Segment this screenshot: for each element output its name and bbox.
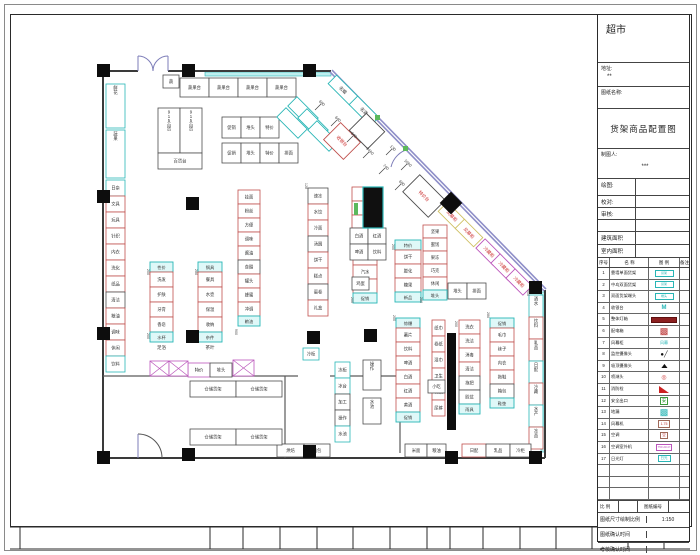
title-block: 超市 地址: ** 图纸名称: 货架商品配置图 制图人: *** 绘图: 校对:…: [597, 14, 690, 542]
legend-row: 7风幕柜风幕: [598, 338, 689, 350]
promo-xbox: [169, 361, 188, 376]
column: [529, 451, 542, 464]
plan-label: 卷纸: [434, 341, 443, 348]
plan-label: 特价: [265, 124, 274, 130]
shelf-cell: 清洁: [106, 292, 125, 308]
ratio-label: 图纸尺寸绘制比例: [598, 516, 647, 523]
legend-symbol-redbar: [651, 317, 677, 323]
shelf-cell: 湿巾: [432, 352, 445, 368]
shelf-cell: 蛋卷: [308, 284, 328, 300]
plan-label: 休闲: [111, 345, 120, 352]
shelf-run: 纸巾卷纸湿巾卫生棉柔尿裤: [432, 320, 445, 416]
plan-label: 200: [350, 297, 354, 303]
plan-label: 冰台: [338, 383, 347, 390]
shelf-cell: 方便: [238, 218, 260, 232]
column: [186, 197, 199, 210]
shelf-cell: 内衣: [106, 244, 125, 260]
plan-label: 清洁: [465, 366, 474, 373]
plan-label: 130: [389, 144, 398, 153]
plan-label: 箱包: [498, 388, 507, 395]
plan-label: 护肤: [157, 291, 166, 298]
legend-row: 16空调室外机750 AD-P: [598, 442, 689, 454]
plan-label: 鞋垫: [498, 400, 507, 407]
plan-label: 饮料: [111, 361, 120, 368]
shelf-run: 促销毛巾袜子内衣拖鞋箱包鞋垫: [490, 318, 514, 408]
shelf-endcap: 水杯: [150, 332, 173, 342]
sheet-title: 货架商品配置图: [598, 109, 689, 149]
plan-label: 蔬果: [113, 131, 118, 142]
check-row: 校对:: [598, 196, 689, 208]
plan-label: 促销: [404, 414, 412, 421]
plan-label: 特价: [195, 367, 204, 373]
column: [97, 327, 110, 340]
partition-wall: [447, 333, 456, 430]
shelf-cell: 巧克: [423, 264, 447, 277]
plan-label: 针织: [111, 233, 120, 240]
audit-row: 审核:: [598, 208, 689, 220]
plan-label: 汽水: [361, 269, 370, 275]
plan-label: 卫生: [434, 373, 443, 379]
shelf-run: 惊爆薯片饮料啤酒白酒红酒黄酒促销: [396, 318, 420, 422]
shelf-cell: 水池: [335, 426, 350, 442]
plan-label: 饼干: [314, 257, 323, 264]
plan-label: 薯片: [404, 332, 413, 339]
plan-label: 900: [526, 290, 530, 296]
shelf-cell: 果冻: [423, 251, 447, 264]
shelf-cell: 汤圆: [308, 236, 328, 252]
promo-xbox: [150, 361, 169, 376]
plan-label: 286: [419, 297, 423, 303]
store-name: 超市: [598, 15, 689, 63]
legend-row: 14风幕机1.75: [598, 419, 689, 431]
shelf-endcap: 杂件: [198, 332, 222, 342]
plan-label: 蜂蜜: [245, 292, 254, 299]
plan-label: 锅具: [206, 264, 215, 271]
shelf-cell: 内衣: [490, 356, 514, 370]
column: [303, 64, 316, 77]
plan-label: 洗衣: [465, 324, 474, 331]
shelf-cell: 调味: [238, 232, 260, 246]
shelf-cell: 仓储货架: [236, 381, 282, 397]
shelf-cell: 蔬果台: [209, 78, 238, 97]
legend-symbol-dome: ▲: [659, 363, 669, 370]
shelf-cell: 堆头: [448, 283, 467, 299]
shelf-cell: 袜子: [490, 342, 514, 356]
plan-label: 挂面: [245, 194, 254, 201]
plan-label: 堆头: [246, 150, 255, 157]
shelf-cell: 玩具: [106, 212, 125, 228]
legend-header: 序号 名 称 图 例 备注: [598, 258, 689, 268]
check-label: 校对:: [598, 196, 636, 207]
plan-label: 果冻: [431, 254, 440, 261]
plan-label: 洗洁: [465, 338, 474, 345]
shelf-cell: 堆头: [241, 117, 260, 138]
shelf-cell: 加工: [335, 394, 350, 410]
legend-symbol-mrect: 750 AD-P: [656, 444, 673, 451]
shelf-cell: 糖果: [395, 278, 421, 292]
shelf-cell: 堆头: [241, 143, 260, 163]
sheet-name-label: 图纸名称:: [598, 87, 689, 109]
ratio-value: 1:150: [647, 517, 689, 523]
column: [364, 329, 377, 342]
plan-label: 文具: [111, 201, 120, 208]
plan-label: 冻品: [534, 428, 539, 439]
shelf-cell: 坚果: [423, 225, 447, 238]
plan-label: 水池: [370, 399, 375, 409]
column: [97, 190, 110, 203]
scale-label: 比 例: [598, 501, 619, 512]
legend-row: 6配电箱▩: [598, 326, 689, 338]
shelf-endcap: 新品: [395, 292, 421, 302]
dim-tick: [401, 164, 407, 170]
plan-label: 仓储货架: [250, 434, 268, 441]
scale-row: 比 例 图纸编号: [598, 500, 689, 512]
plan-label: 堆头: [431, 292, 439, 299]
area1-label: 建筑面积: [598, 232, 636, 244]
drafter-row: 制图人: ***: [598, 149, 689, 179]
shelf-cell: 白酒: [350, 228, 368, 244]
plan-label: 冷柜: [516, 447, 525, 454]
shelf-cell: 蔬果: [106, 130, 125, 178]
shelf-cell: 水壶: [198, 287, 222, 302]
plan-label: 128: [304, 183, 308, 189]
shelf-cell: 小吃: [428, 380, 445, 393]
column: [303, 445, 316, 458]
column: [186, 330, 199, 343]
plan-label: 黄酒: [404, 402, 413, 409]
plan-label: 毛巾: [498, 332, 507, 339]
legend-row: 17日光灯日光: [598, 454, 689, 466]
plan-label: 冷面: [314, 225, 323, 232]
area2-row: 室内面积: [598, 245, 689, 258]
plan-label: 调味: [111, 329, 120, 336]
plan-label: 鲜花: [113, 85, 118, 96]
shelf-cell: 酒水: [529, 295, 543, 317]
legend-row: 12安全出口安: [598, 396, 689, 408]
column: [182, 64, 195, 77]
legend-row: 5整体灯箱: [598, 314, 689, 326]
shelf-cell: 米面: [405, 444, 427, 457]
plan-label: 饼干: [404, 254, 413, 261]
column: [182, 448, 195, 461]
shelf-cell: 乳品: [529, 339, 543, 361]
legend-symbol-cM: M: [662, 305, 667, 311]
legend-symbol-crect: 端头: [655, 293, 674, 300]
legend-symbol-brsq: 1.75: [658, 420, 671, 428]
shelf-cell: 消毒: [459, 348, 480, 362]
legend-row: [598, 477, 689, 489]
shelf-cell: 挂面: [238, 190, 260, 204]
plan-label: 坚果: [431, 228, 440, 235]
shelf-cell: 特价: [188, 363, 210, 377]
shelf-cell: 啤酒: [396, 356, 420, 370]
shelf-cell: 粮油: [427, 444, 446, 457]
plan-label: 仓储货架: [204, 386, 222, 393]
legend-symbol-crect: 货架: [655, 270, 674, 277]
shelf-cell: 礼盒: [308, 300, 328, 316]
shelf-run: 洗衣洗洁消毒清洁拖把脸盆雨具: [459, 320, 480, 414]
plan-label: 百货台: [174, 158, 187, 165]
shelf-cell: 红酒: [396, 384, 420, 398]
plan-label: 200: [454, 321, 458, 327]
shelf-cell: 薯片: [396, 328, 420, 342]
column: [307, 331, 320, 344]
shelf-endcap: 鞋垫: [490, 398, 514, 408]
shelf-cell: 餐具: [198, 272, 222, 287]
plan-label: 200: [146, 269, 150, 275]
shelf-cell: [352, 215, 363, 228]
sheetno-label: 图纸编号: [638, 501, 669, 512]
shelf-cell: 促销: [222, 143, 241, 163]
plan-label: 蛋卷: [314, 289, 323, 296]
shelf-cell: [352, 187, 363, 201]
plan-label: 690: [318, 99, 327, 108]
shelf-cell: 洗洁: [459, 334, 480, 348]
plan-label: 拖鞋: [498, 374, 507, 381]
dim-tick: [331, 120, 337, 126]
legend-row: 10喷淋头◎: [598, 372, 689, 384]
shelf-cell: 饼干: [308, 252, 328, 268]
legend-header-name: 名 称: [610, 258, 649, 267]
plan-label: 堆头: [217, 367, 226, 374]
shelf-cell: 日配: [462, 444, 486, 457]
plan-label: 性价: [157, 264, 166, 271]
shelf-cell: 饼干: [395, 250, 421, 264]
area1-row: 建筑面积: [598, 232, 689, 245]
shelf-cell: 堆头: [210, 363, 232, 377]
plan-label: 冷柜: [307, 351, 316, 358]
plan-label: 惊爆: [404, 320, 413, 327]
plan-label: 冷藏: [534, 384, 539, 395]
shelf-cell: 蜜饯: [423, 238, 447, 251]
shelf-cell: 脸盆: [459, 390, 480, 404]
shelf-cell: 洗发: [150, 272, 173, 287]
shelf-endcap: 促销: [353, 293, 377, 303]
plan-label: 速冻: [314, 193, 323, 200]
shelf-cell: 黄酒: [396, 398, 420, 412]
shelf-run: 特价饼干膨化糖果新品: [395, 240, 421, 302]
shelf-cell: 膨化: [395, 264, 421, 278]
shelf-cell: 蔬果台: [180, 78, 209, 97]
shelf-endcap: 特价: [395, 240, 421, 250]
plan-label: 酱油: [245, 250, 254, 257]
plan-label: 小吃: [432, 383, 441, 390]
shelf-cell: 洗化: [106, 260, 125, 276]
plan-label: 水池: [338, 431, 347, 437]
shelf-cell: 冷面: [308, 220, 328, 236]
shelf-cell: 特价: [260, 117, 279, 138]
plan-label: 促销: [227, 124, 236, 131]
shelf-cell: 百货台: [158, 153, 202, 169]
plan-label: 日配: [534, 363, 539, 373]
area2-label: 室内面积: [598, 245, 636, 257]
shelf-cell: 冷藏: [529, 383, 543, 405]
plan-label: 冲调: [245, 306, 254, 313]
plan-label: 调味: [245, 236, 254, 243]
column: [97, 64, 110, 77]
plan-label: 粮油: [245, 318, 253, 325]
shelf-endcap: 促销: [490, 318, 514, 328]
plan-label: 水壶: [206, 291, 215, 297]
confirm1-label: 图纸确认时间: [598, 531, 647, 538]
shelf-cell: 915百货: [180, 108, 202, 153]
plan-label: 蔬果台: [246, 84, 259, 91]
shelf-cell: 冻柜: [335, 362, 350, 378]
shelf-cell: 915百货: [158, 108, 180, 153]
plan-label: 水杯: [157, 334, 166, 341]
shelf-cell: 仓储货架: [190, 381, 236, 397]
shelf-cell: 排面: [467, 283, 486, 299]
legend-row: 13地漏▩: [598, 407, 689, 419]
blank-row: [598, 220, 689, 232]
shelf-cell: 酱油: [238, 246, 260, 260]
shelf-cell: 操作: [335, 410, 350, 426]
shelf-cell: 蔬果台: [267, 78, 296, 97]
legend-symbol-chatch: ▩: [660, 408, 669, 417]
shelf-cell: 箱包: [490, 384, 514, 398]
plan-label: 内衣: [111, 249, 120, 256]
drafter-label: 制图人:: [601, 152, 617, 158]
shelf-run: 酒水饮料乳品日配冷藏水产冻品: [529, 295, 543, 449]
shelf-cell: 水池: [363, 398, 381, 424]
legend-row: [598, 465, 689, 477]
promo-xbox: [233, 360, 254, 376]
shelf-run: 挂面粉丝方便调味酱油食醋罐头蜂蜜冲调粮油: [238, 190, 260, 326]
shelf-cell: 护肤: [150, 287, 173, 302]
plan-label: 200: [391, 244, 395, 250]
plan-label: 促销: [227, 150, 236, 157]
shelf-cell: 操作: [363, 360, 381, 390]
plan-label: 粮油: [432, 447, 441, 454]
plan-label: 糕点: [314, 273, 323, 280]
shelf-cell: 鲜花: [106, 84, 125, 128]
plan-label: 内衣: [498, 360, 507, 367]
address-row: 地址: **: [598, 63, 689, 87]
shelf-cell: 促销: [222, 117, 241, 138]
legend-row: 11消防栓: [598, 384, 689, 396]
service-counter: [363, 187, 383, 228]
shelf-cell: 红酒: [368, 228, 386, 244]
plan-label: 仓储货架: [250, 386, 268, 393]
dim-tick: [315, 104, 321, 110]
plan-label: 200: [146, 333, 150, 339]
plan-label: 方便: [245, 222, 254, 229]
plan-label: 米面: [412, 447, 421, 454]
legend-symbol-brsq2: 空: [660, 432, 668, 439]
shelf-cell: 冷柜: [303, 348, 319, 360]
shelf-cell: 蔬: [163, 75, 179, 88]
plan-label: 排面: [472, 288, 481, 295]
plan-label: 饮料: [534, 318, 539, 329]
shelf-cell: 烘焙: [277, 444, 304, 457]
shelf-cell: 食醋: [238, 260, 260, 274]
plan-label: 新品: [404, 294, 412, 301]
shelf-cell: 日配: [529, 361, 543, 383]
shelf-cell: 粮油: [106, 308, 125, 324]
dim-tick: [363, 152, 369, 158]
legend-row: 9吸顶摄像头▲: [598, 361, 689, 373]
legend-row: [598, 488, 689, 500]
plan-label: 水产: [534, 406, 539, 417]
plan-label: 杂件: [206, 334, 214, 341]
plan-label: 礼盒: [314, 305, 323, 312]
plan-label: 排面: [284, 150, 293, 157]
shelf-endcap: 雨具: [459, 404, 480, 414]
plan-label: 保温: [206, 306, 215, 313]
audit-label: 审核:: [598, 208, 636, 219]
shelf-cell: 保温: [198, 302, 222, 317]
plan-label: 啤酒: [355, 249, 364, 256]
shelf-cell: 乳品: [486, 444, 510, 457]
plan-label: 286: [194, 269, 198, 275]
shelf-cell: 拖鞋: [490, 370, 514, 384]
legend-header-no: 序号: [598, 258, 610, 267]
legend-row: 4收银台M: [598, 303, 689, 315]
green-mark: [354, 203, 358, 215]
plan-label: 粉丝: [245, 208, 254, 215]
plan-label: 690: [398, 179, 407, 188]
legend-symbol-rcircle: ◎: [661, 374, 666, 381]
plan-label: 饮料: [404, 346, 413, 353]
legend-symbol-cyrect: 日光: [658, 455, 671, 462]
plan-label: 640: [334, 115, 343, 124]
shelf-cell: 收纳: [198, 317, 222, 332]
shelf-cell: 纸巾: [432, 320, 445, 336]
plan-label: 收纳: [206, 321, 215, 328]
plan-label: 纸品: [111, 281, 120, 288]
shelf-cell: 特价: [260, 143, 279, 163]
plan-label: 蜜饯: [431, 241, 440, 248]
column: [445, 451, 458, 464]
plan-label: 水饺: [314, 209, 323, 216]
shelf-cell: 针织: [106, 228, 125, 244]
dim-tick: [386, 149, 392, 155]
plan-label: 消毒: [465, 352, 474, 359]
shelf-cell: 冷柜: [510, 444, 531, 457]
shelf-cell: 休闲: [106, 340, 125, 356]
shelf-cell: 拖把: [459, 376, 480, 390]
column: [97, 451, 110, 464]
draw-label: 绘图:: [598, 179, 636, 195]
plan-label: 洗发: [157, 276, 166, 283]
legend-row: 8监控摄像头●╱: [598, 349, 689, 361]
plan-label: 休闲: [431, 280, 440, 287]
shelf-run: 日杂文具玩具针织内衣洗化纸品清洁粮油调味休闲饮料: [106, 180, 125, 372]
plan-label: 袜子: [498, 346, 507, 353]
plan-label: 堆头: [453, 288, 462, 295]
shelf-cell: 啤酒: [350, 244, 368, 260]
shelf-cell: 仓储货架: [190, 429, 236, 445]
legend-row: 15空调空: [598, 430, 689, 442]
legend-rows: 1靠墙单面货架货架2中岛双面货架货架3双面货架端头端头4收银台M5整体灯箱6配电…: [598, 268, 689, 500]
shelf-run: 性价洗发护肤牙膏香皂水杯足浴: [150, 262, 173, 351]
legend-row: 2中岛双面货架货架: [598, 280, 689, 292]
plan-label: 200: [392, 315, 396, 321]
ratio-row: 图纸尺寸绘制比例 1:150: [598, 512, 689, 527]
plan-label: 牙膏: [157, 306, 166, 313]
shelf-run: 坚果蜜饯果冻巧克休闲堆头: [423, 225, 447, 300]
plan-label: 蔬: [169, 78, 174, 85]
confirm1-row: 图纸确认时间: [598, 527, 689, 542]
plan-label: 3460: [365, 146, 375, 156]
plan-label: 286: [486, 312, 490, 318]
plan-label: 白酒: [404, 374, 413, 381]
plan-label: 脸盆: [465, 394, 474, 401]
shelf-cell: 冲调: [238, 302, 260, 316]
plan-label: 烘焙: [286, 447, 295, 454]
shelf-cell: 饮料: [396, 342, 420, 356]
shelf-cell: 排面: [279, 143, 298, 163]
